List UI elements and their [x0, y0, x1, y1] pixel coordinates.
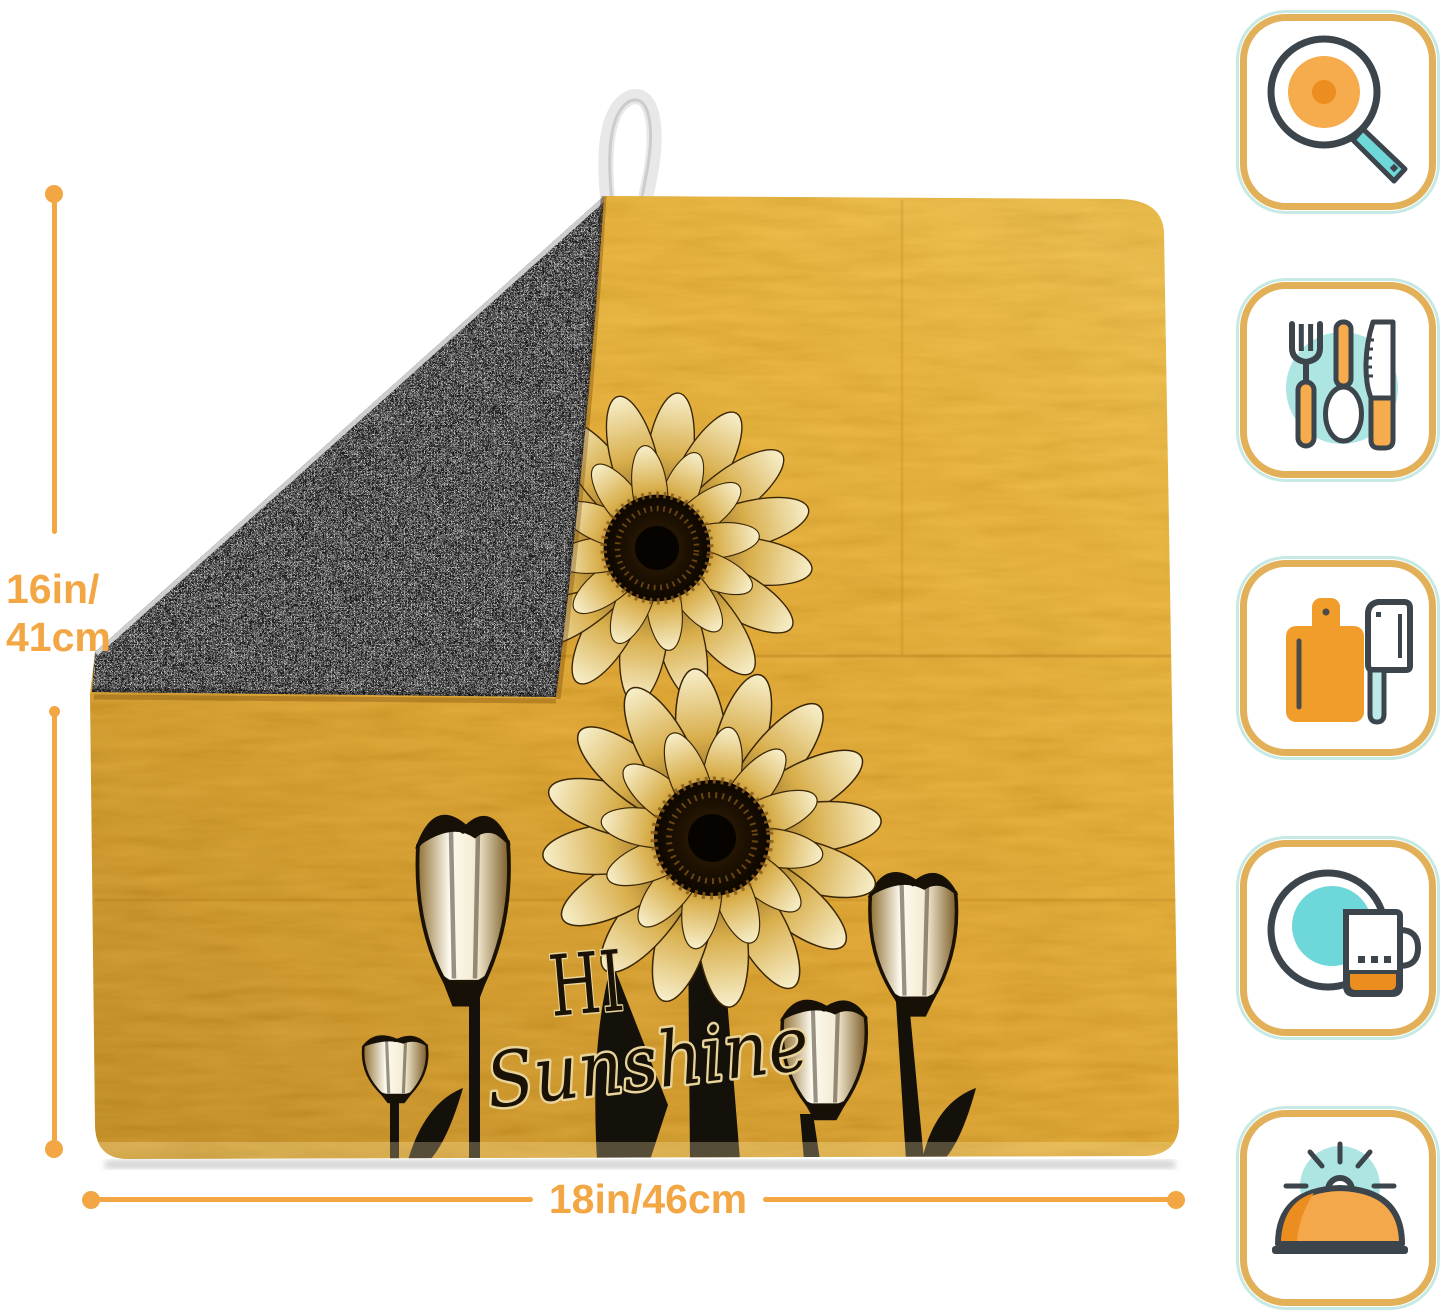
serving-dome-icon [1254, 1124, 1422, 1292]
height-line-lower [52, 712, 57, 1148]
width-line-right [763, 1197, 1170, 1202]
mat-fold-backing [85, 185, 615, 705]
height-line-upper [52, 198, 57, 534]
cutting-board-icon [1254, 574, 1422, 742]
product-image: HI Sunshine 16in/ 41c [0, 0, 1445, 1315]
mat-shadow [105, 1160, 1175, 1169]
height-label-inches: 16in/ [6, 566, 111, 614]
feature-card-cutting-board [1240, 560, 1436, 756]
feature-card-serving-dome [1240, 1110, 1436, 1306]
height-label-cm: 41cm [6, 614, 111, 662]
feature-card-utensils [1240, 282, 1436, 478]
width-line-left [97, 1197, 533, 1202]
feature-card-dish-and-mug [1240, 840, 1436, 1036]
feature-card-frying-pan [1240, 14, 1436, 210]
width-line-right-dot [1167, 1191, 1185, 1209]
height-dimension-label: 16in/ 41cm [6, 566, 111, 661]
frying-pan-icon [1254, 28, 1422, 196]
utensils-icon [1254, 296, 1422, 464]
drying-mat-photo: HI Sunshine [0, 0, 1445, 1315]
height-line-bottom-dot [45, 1140, 63, 1158]
width-dimension-label: 18in/46cm [533, 1176, 763, 1224]
dish-and-mug-icon [1254, 854, 1422, 1022]
